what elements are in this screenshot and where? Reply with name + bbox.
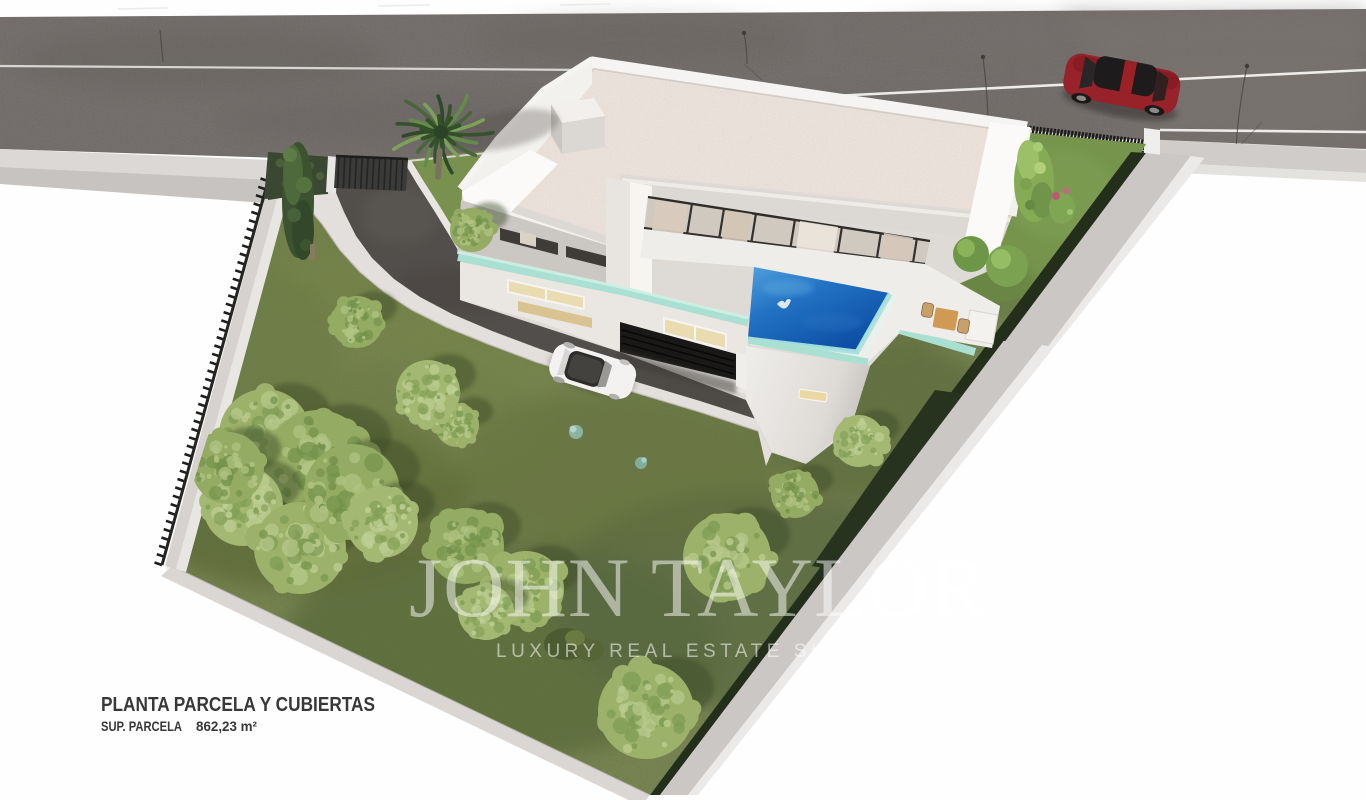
svg-text:PLANTA PARCELA Y CUBIERTAS: PLANTA PARCELA Y CUBIERTAS <box>101 693 375 716</box>
svg-text:SUP. PARCELA: SUP. PARCELA <box>101 718 182 734</box>
svg-text:JOHN TAYLOR: JOHN TAYLOR <box>409 541 987 635</box>
svg-text:LUXURY REAL ESTATE SINCE 1864: LUXURY REAL ESTATE SINCE 1864 <box>496 641 944 662</box>
svg-text:862,23 m²: 862,23 m² <box>196 718 257 734</box>
